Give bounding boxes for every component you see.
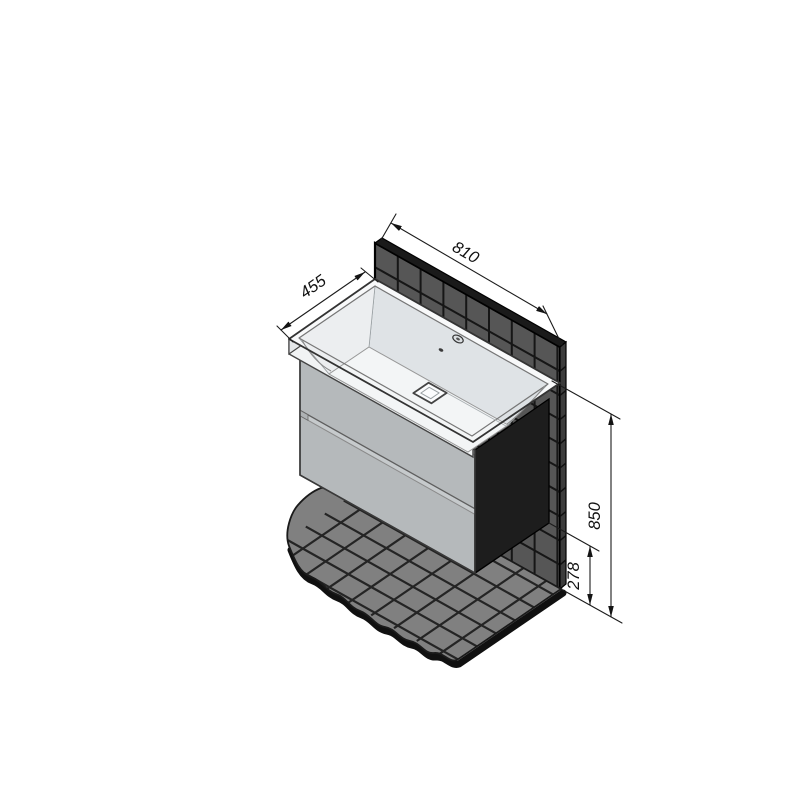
dimension-label-height: 850 xyxy=(586,501,604,529)
dimension-label-clearance: 278 xyxy=(565,561,583,590)
technical-drawing-page: тумба консольнаяИмпрэс т18-80под умываль… xyxy=(0,0,800,800)
technical-drawing-svg: 810 455 850 278 xyxy=(0,0,800,800)
